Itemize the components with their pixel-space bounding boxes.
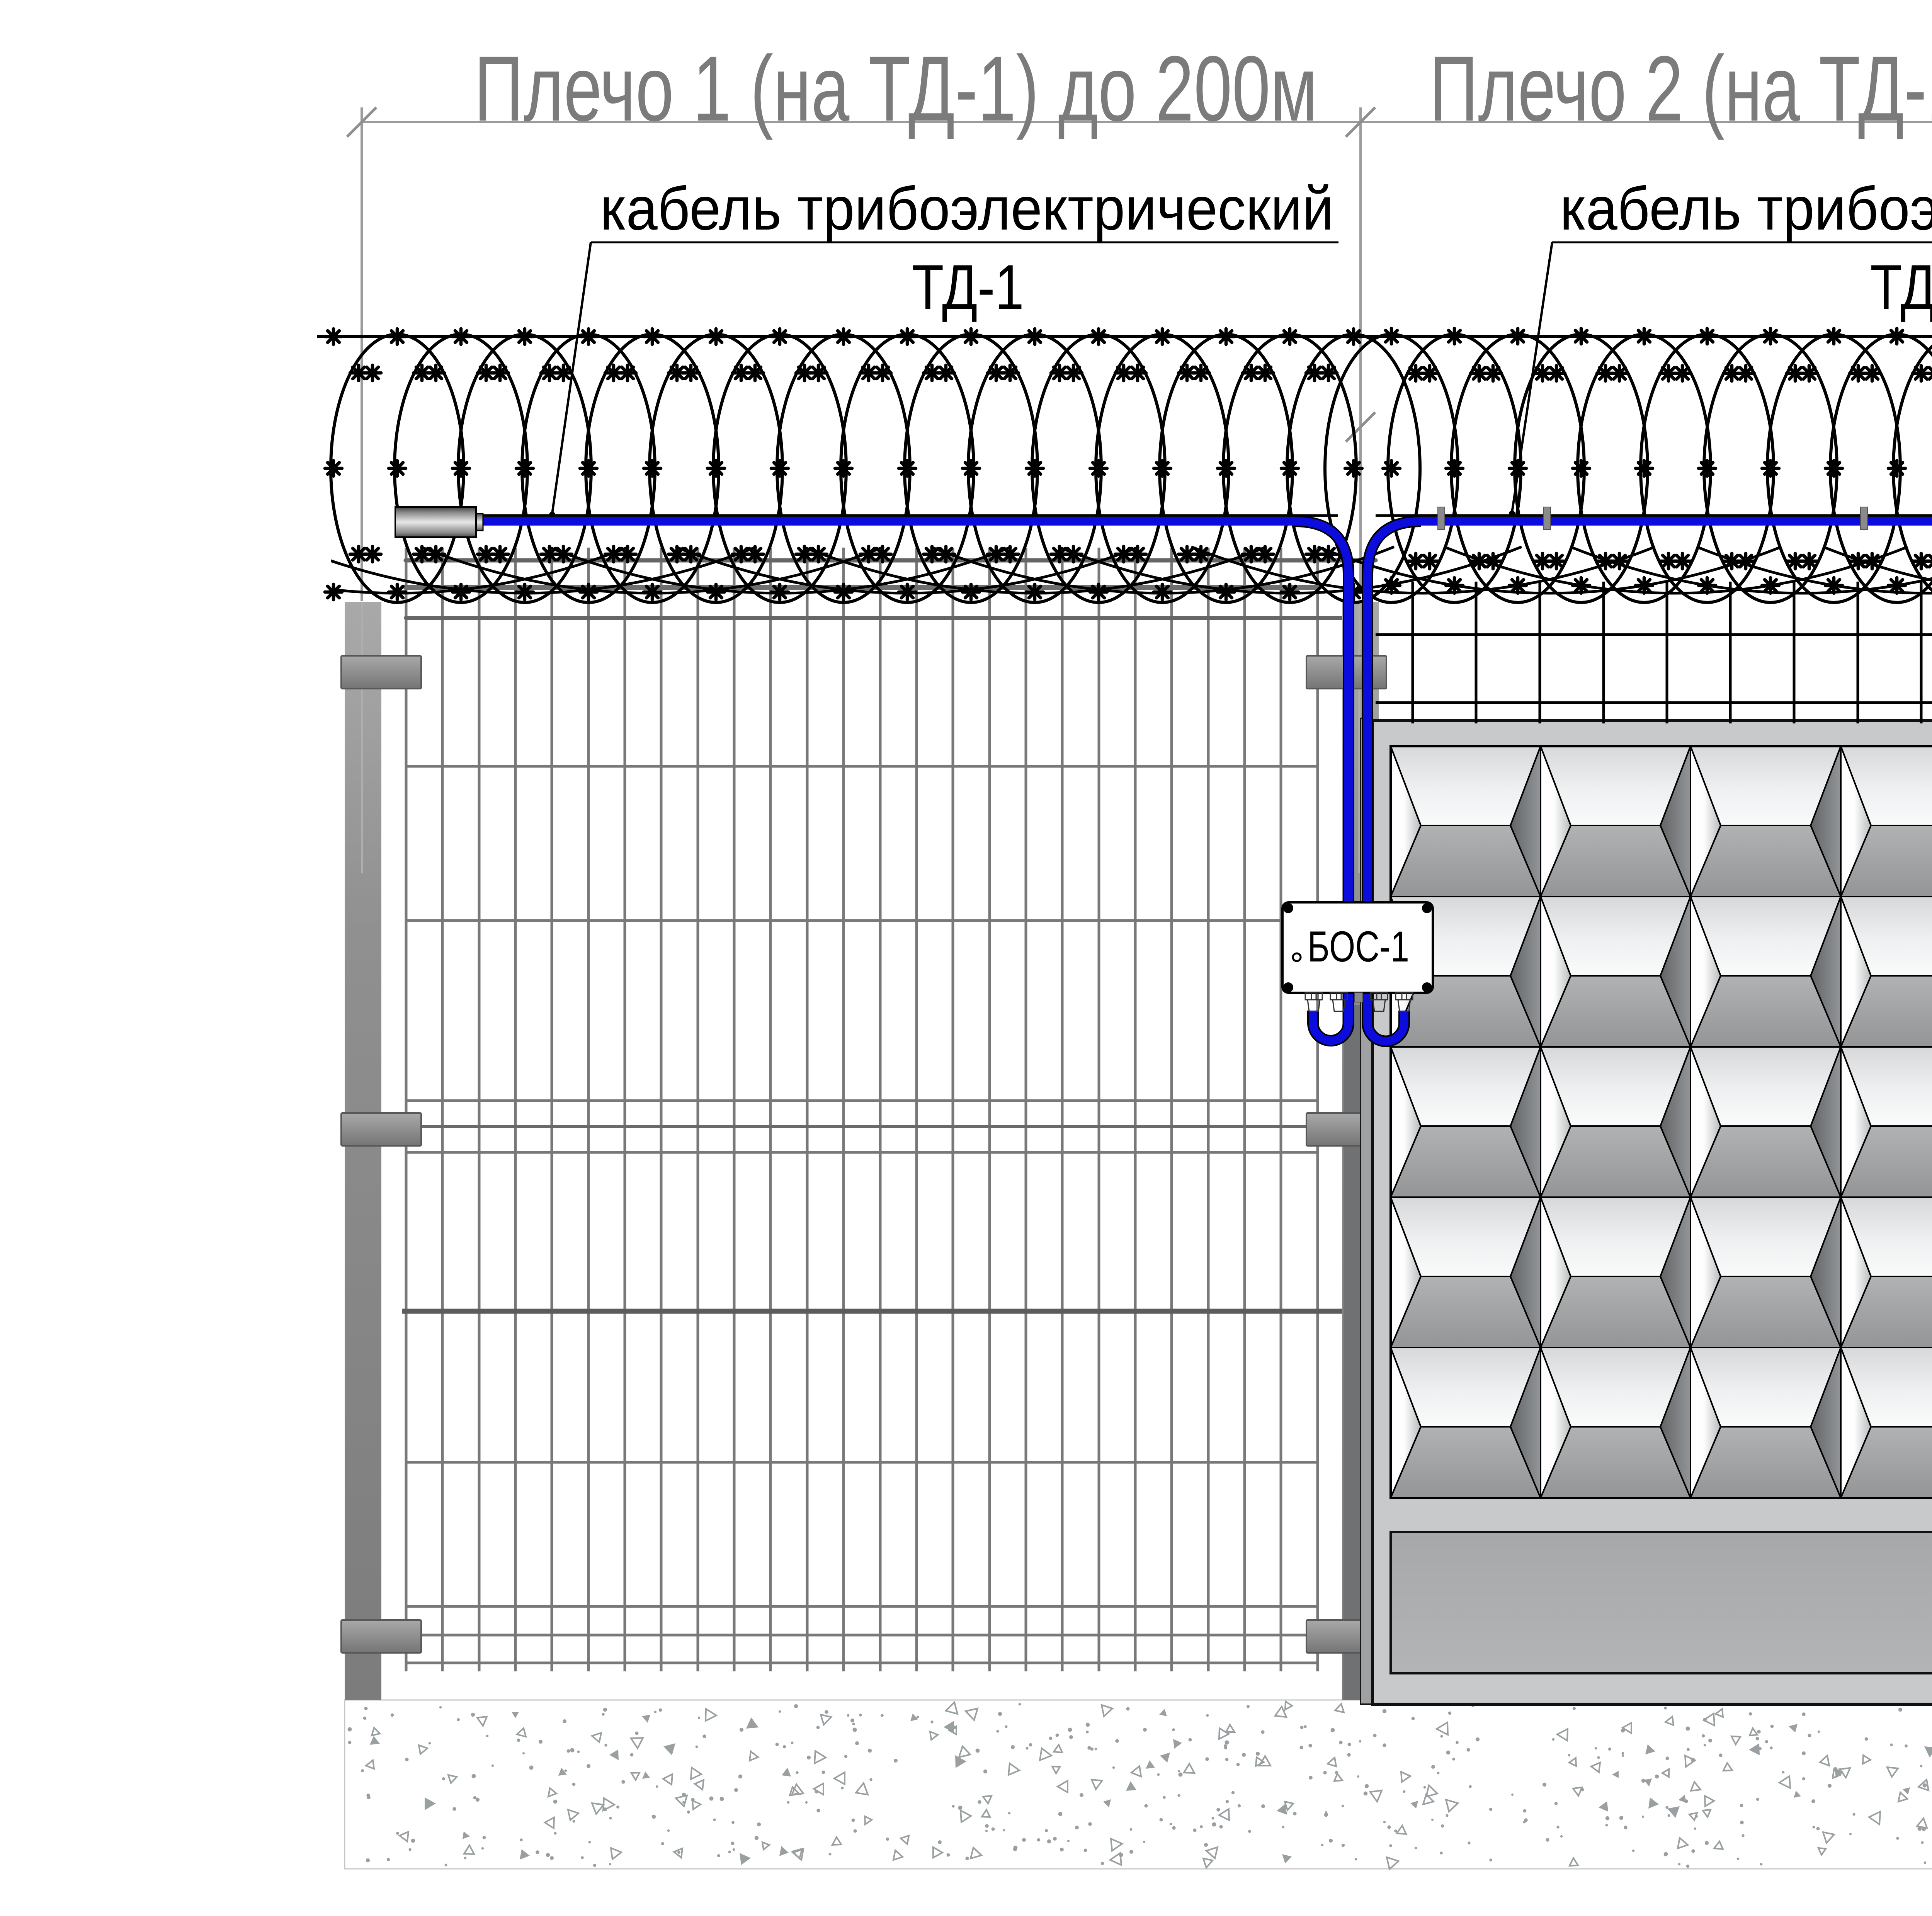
- svg-text:БОС-1: БОС-1: [1308, 922, 1409, 971]
- svg-text:ТД-1: ТД-1: [912, 252, 1024, 323]
- svg-text:Плечо 2 (на ТД-1) до 200м: Плечо 2 (на ТД-1) до 200м: [1429, 37, 1932, 140]
- svg-text:Плечо 1 (на ТД-1) до 200м: Плечо 1 (на ТД-1) до 200м: [474, 37, 1318, 140]
- svg-text:кабель трибоэлектрический: кабель трибоэлектрический: [600, 175, 1334, 243]
- svg-text:кабель трибоэлектрический: кабель трибоэлектрический: [1560, 175, 1932, 243]
- svg-text:ТД-1: ТД-1: [1870, 252, 1932, 323]
